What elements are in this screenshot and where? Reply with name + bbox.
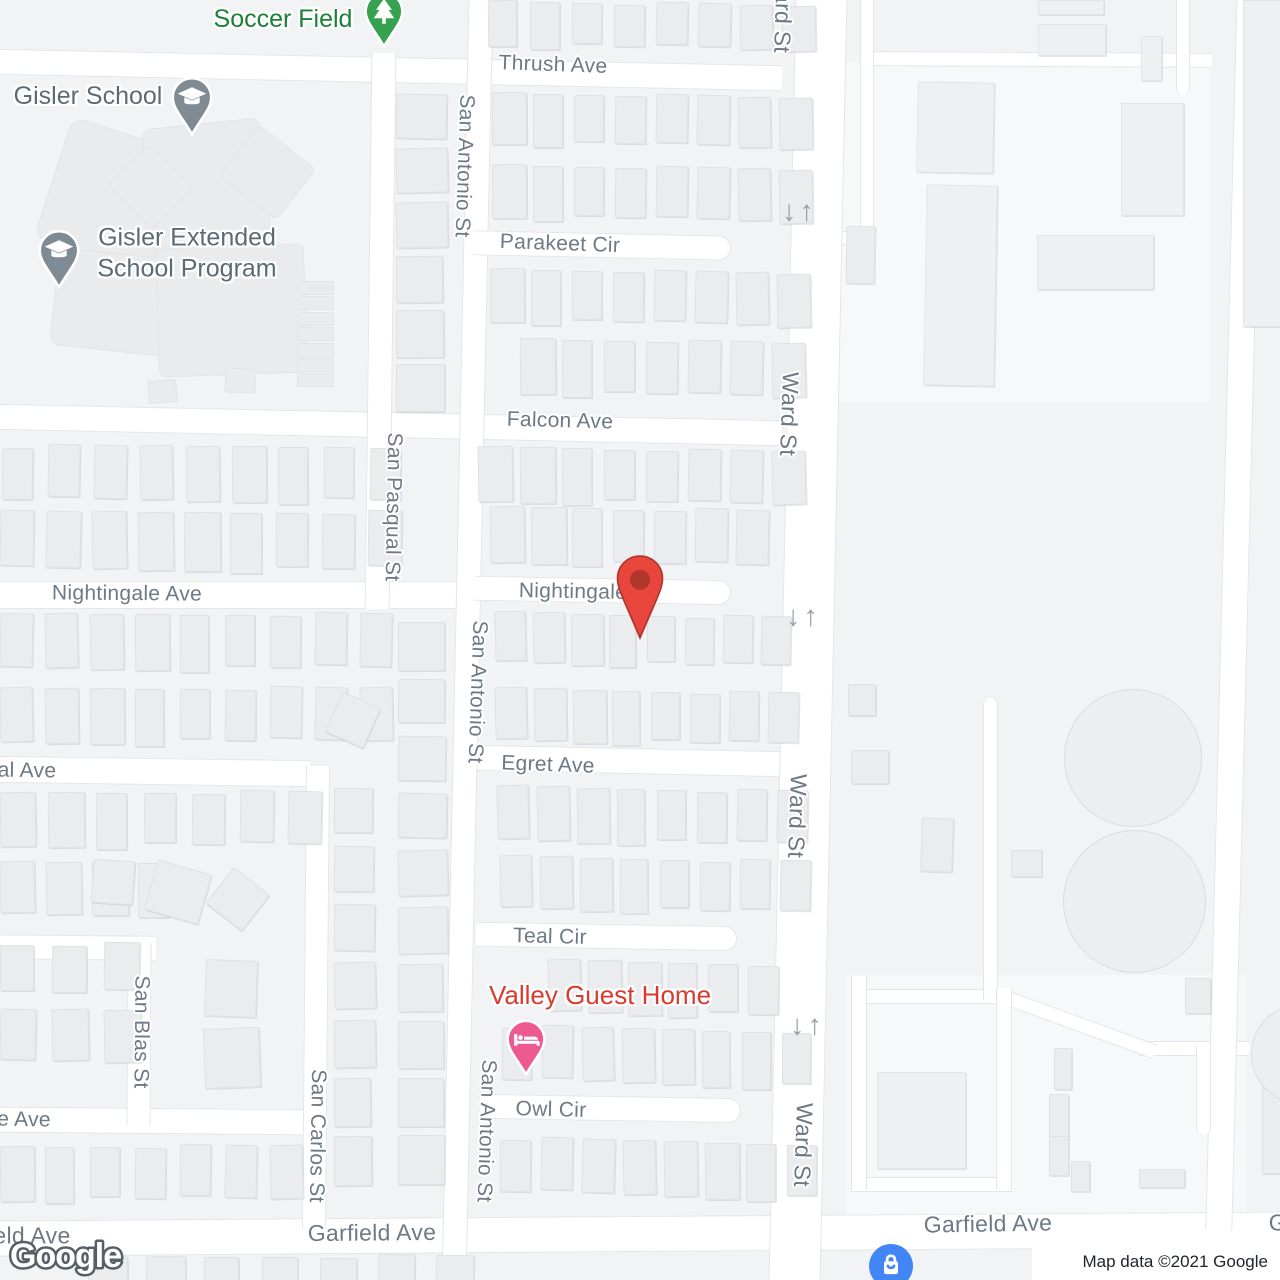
- google-watermark: Google: [4, 1230, 136, 1278]
- poi-label-soccer-field[interactable]: Soccer Field: [214, 4, 353, 35]
- shopping-icon: [869, 1244, 913, 1280]
- attribution-text: Map data ©2021 Google: [1083, 1252, 1269, 1272]
- lodging-icon: [506, 1019, 546, 1076]
- poi-pin-soccer-field[interactable]: [364, 0, 404, 48]
- arrow-down-icon: ↓: [786, 603, 801, 632]
- google-watermark-text: Google: [10, 1237, 121, 1275]
- map-canvas[interactable]: Thrush AveParakeet CirFalcon AveNighting…: [0, 0, 1280, 1280]
- arrow-up-icon: ↑: [800, 198, 815, 227]
- poi-label-gisler-school[interactable]: Gisler School: [14, 81, 163, 112]
- poi-label-valley-guest-home[interactable]: Valley Guest Home: [489, 980, 711, 1012]
- poi-pin-destination[interactable]: [615, 554, 665, 641]
- school-icon: [38, 229, 80, 289]
- poi-pin-valley-guest-home[interactable]: [506, 1019, 546, 1076]
- arrow-down-icon: ↓: [782, 198, 797, 227]
- arrow-up-icon: ↑: [804, 603, 819, 632]
- poi-pin-shopping[interactable]: [869, 1244, 913, 1280]
- poi-pin-gisler-school[interactable]: [171, 76, 213, 136]
- one-way-arrows: ↓↑: [782, 198, 814, 227]
- poi-label-gisler-extended-school-program[interactable]: Gisler Extended School Program: [77, 223, 297, 284]
- poi-layer: ↓↑↓↑↓↑Soccer Field Gisler School Gisler …: [0, 0, 1280, 1280]
- attribution-bar: Map data ©2021 Google: [1032, 1243, 1280, 1280]
- destination-pin-icon: [615, 554, 665, 641]
- one-way-arrows: ↓↑: [786, 603, 818, 632]
- arrow-up-icon: ↑: [808, 1012, 823, 1041]
- tree-icon: [364, 0, 404, 48]
- arrow-down-icon: ↓: [790, 1012, 805, 1041]
- one-way-arrows: ↓↑: [790, 1012, 822, 1041]
- poi-pin-gisler-extended-school-program[interactable]: [38, 229, 80, 289]
- school-icon: [171, 76, 213, 136]
